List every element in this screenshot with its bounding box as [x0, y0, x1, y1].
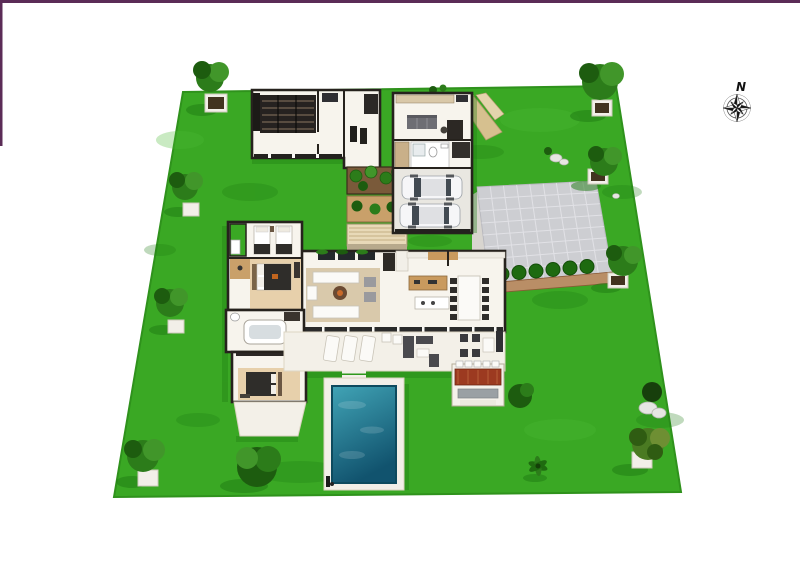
window: [456, 95, 468, 102]
bench: [458, 389, 498, 398]
pool-ladder: [326, 476, 330, 487]
side-table: [483, 338, 494, 352]
toilet: [231, 313, 240, 321]
sink: [441, 144, 448, 148]
main-living-block: [298, 250, 505, 333]
top-border-rule: [0, 0, 800, 3]
bedroom-wing: [226, 222, 306, 436]
nightstand: [270, 226, 274, 232]
floor-plan-render: N: [0, 0, 800, 566]
compass-north-label: N: [736, 80, 746, 94]
entry-column: [396, 251, 408, 271]
car: [402, 175, 462, 201]
tv-wall: [383, 253, 395, 271]
accent-cushion: [272, 274, 278, 279]
pool-area: [324, 371, 404, 491]
kitchen-counter-wood: [428, 252, 458, 260]
tall-cabinet: [253, 93, 260, 131]
dresser: [294, 262, 300, 278]
desk: [447, 120, 463, 140]
cabinet: [452, 142, 470, 158]
clerestory-windows: [316, 250, 375, 261]
step: [460, 400, 496, 405]
outdoor-basin: [231, 240, 240, 254]
window-band: [254, 154, 342, 158]
headboard: [252, 264, 257, 290]
dining-table: [458, 276, 480, 320]
outdoor-cabinet: [496, 331, 503, 352]
side-patio: [234, 402, 306, 436]
bush: [520, 383, 534, 397]
pergola-chairs: [456, 361, 499, 367]
utility-wing: [252, 90, 380, 168]
small-bush: [440, 85, 447, 92]
car: [400, 203, 460, 229]
right-wing: [393, 93, 472, 233]
sun-loungers: [323, 335, 376, 362]
cube-chair: [393, 335, 402, 344]
pool-water: [332, 386, 396, 483]
cube-chair: [382, 333, 391, 342]
left-border-rule: [0, 0, 3, 146]
vanity: [284, 312, 300, 321]
scene-canvas: N: [0, 0, 800, 566]
office-sofa: [407, 118, 437, 129]
garage-door: [395, 229, 471, 233]
coat-rack: [360, 128, 367, 144]
bench: [240, 394, 250, 398]
hall-cabinet: [364, 94, 378, 114]
coat-rack: [350, 126, 357, 142]
closet: [395, 142, 409, 168]
sofa: [313, 306, 359, 318]
armchair: [364, 277, 376, 287]
outdoor-dining-pergola: [452, 361, 504, 406]
desk-chair: [441, 127, 448, 134]
armchair: [307, 286, 317, 300]
window: [322, 93, 338, 102]
toilet: [429, 147, 437, 157]
wardrobe: [396, 95, 454, 103]
shower: [413, 144, 425, 156]
sofa: [313, 272, 359, 283]
armchair: [364, 292, 376, 302]
